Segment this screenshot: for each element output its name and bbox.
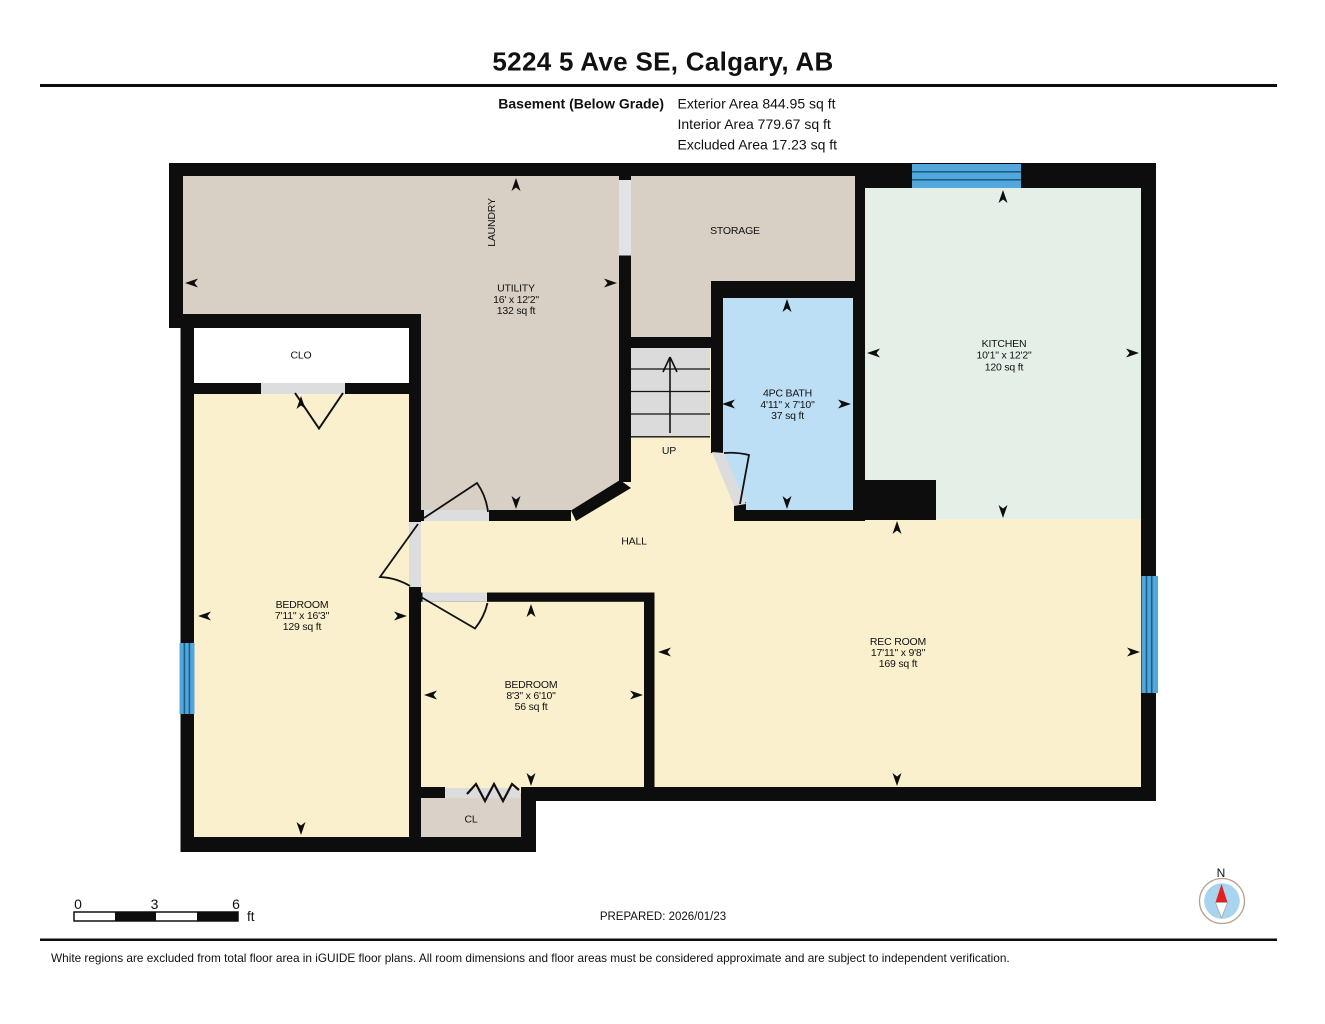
svg-text:CL: CL xyxy=(464,814,477,826)
svg-text:HALL: HALL xyxy=(621,536,647,548)
svg-text:3: 3 xyxy=(151,896,159,912)
svg-text:UP: UP xyxy=(662,445,676,457)
svg-text:10'1" x 12'2": 10'1" x 12'2" xyxy=(977,350,1032,362)
svg-text:White regions are excluded fro: White regions are excluded from total fl… xyxy=(51,951,1010,965)
svg-text:CLO: CLO xyxy=(291,350,312,362)
svg-text:0: 0 xyxy=(74,896,82,912)
svg-text:LAUNDRY: LAUNDRY xyxy=(486,198,498,247)
svg-text:4PC BATH: 4PC BATH xyxy=(763,388,812,400)
svg-text:120 sq ft: 120 sq ft xyxy=(985,362,1024,374)
svg-text:Excluded Area 17.23 sq ft: Excluded Area 17.23 sq ft xyxy=(678,137,838,153)
svg-text:KITCHEN: KITCHEN xyxy=(982,338,1027,350)
svg-text:PREPARED: 2026/01/23: PREPARED: 2026/01/23 xyxy=(600,911,726,923)
svg-text:169 sq ft: 169 sq ft xyxy=(879,658,918,670)
svg-text:N: N xyxy=(1217,866,1226,880)
svg-text:6: 6 xyxy=(232,896,240,912)
svg-text:Interior Area 779.67 sq ft: Interior Area 779.67 sq ft xyxy=(678,116,831,132)
svg-text:129 sq ft: 129 sq ft xyxy=(283,621,322,633)
svg-text:37 sq ft: 37 sq ft xyxy=(771,410,804,422)
svg-text:UTILITY: UTILITY xyxy=(497,283,535,295)
svg-text:56 sq ft: 56 sq ft xyxy=(515,701,548,713)
svg-text:Exterior Area 844.95 sq ft: Exterior Area 844.95 sq ft xyxy=(678,96,836,112)
svg-text:ft: ft xyxy=(247,909,255,924)
svg-text:132 sq ft: 132 sq ft xyxy=(497,305,536,317)
svg-text:STORAGE: STORAGE xyxy=(710,225,760,237)
svg-text:Basement (Below Grade): Basement (Below Grade) xyxy=(498,96,664,112)
svg-text:5224 5 Ave SE, Calgary, AB: 5224 5 Ave SE, Calgary, AB xyxy=(492,47,833,77)
